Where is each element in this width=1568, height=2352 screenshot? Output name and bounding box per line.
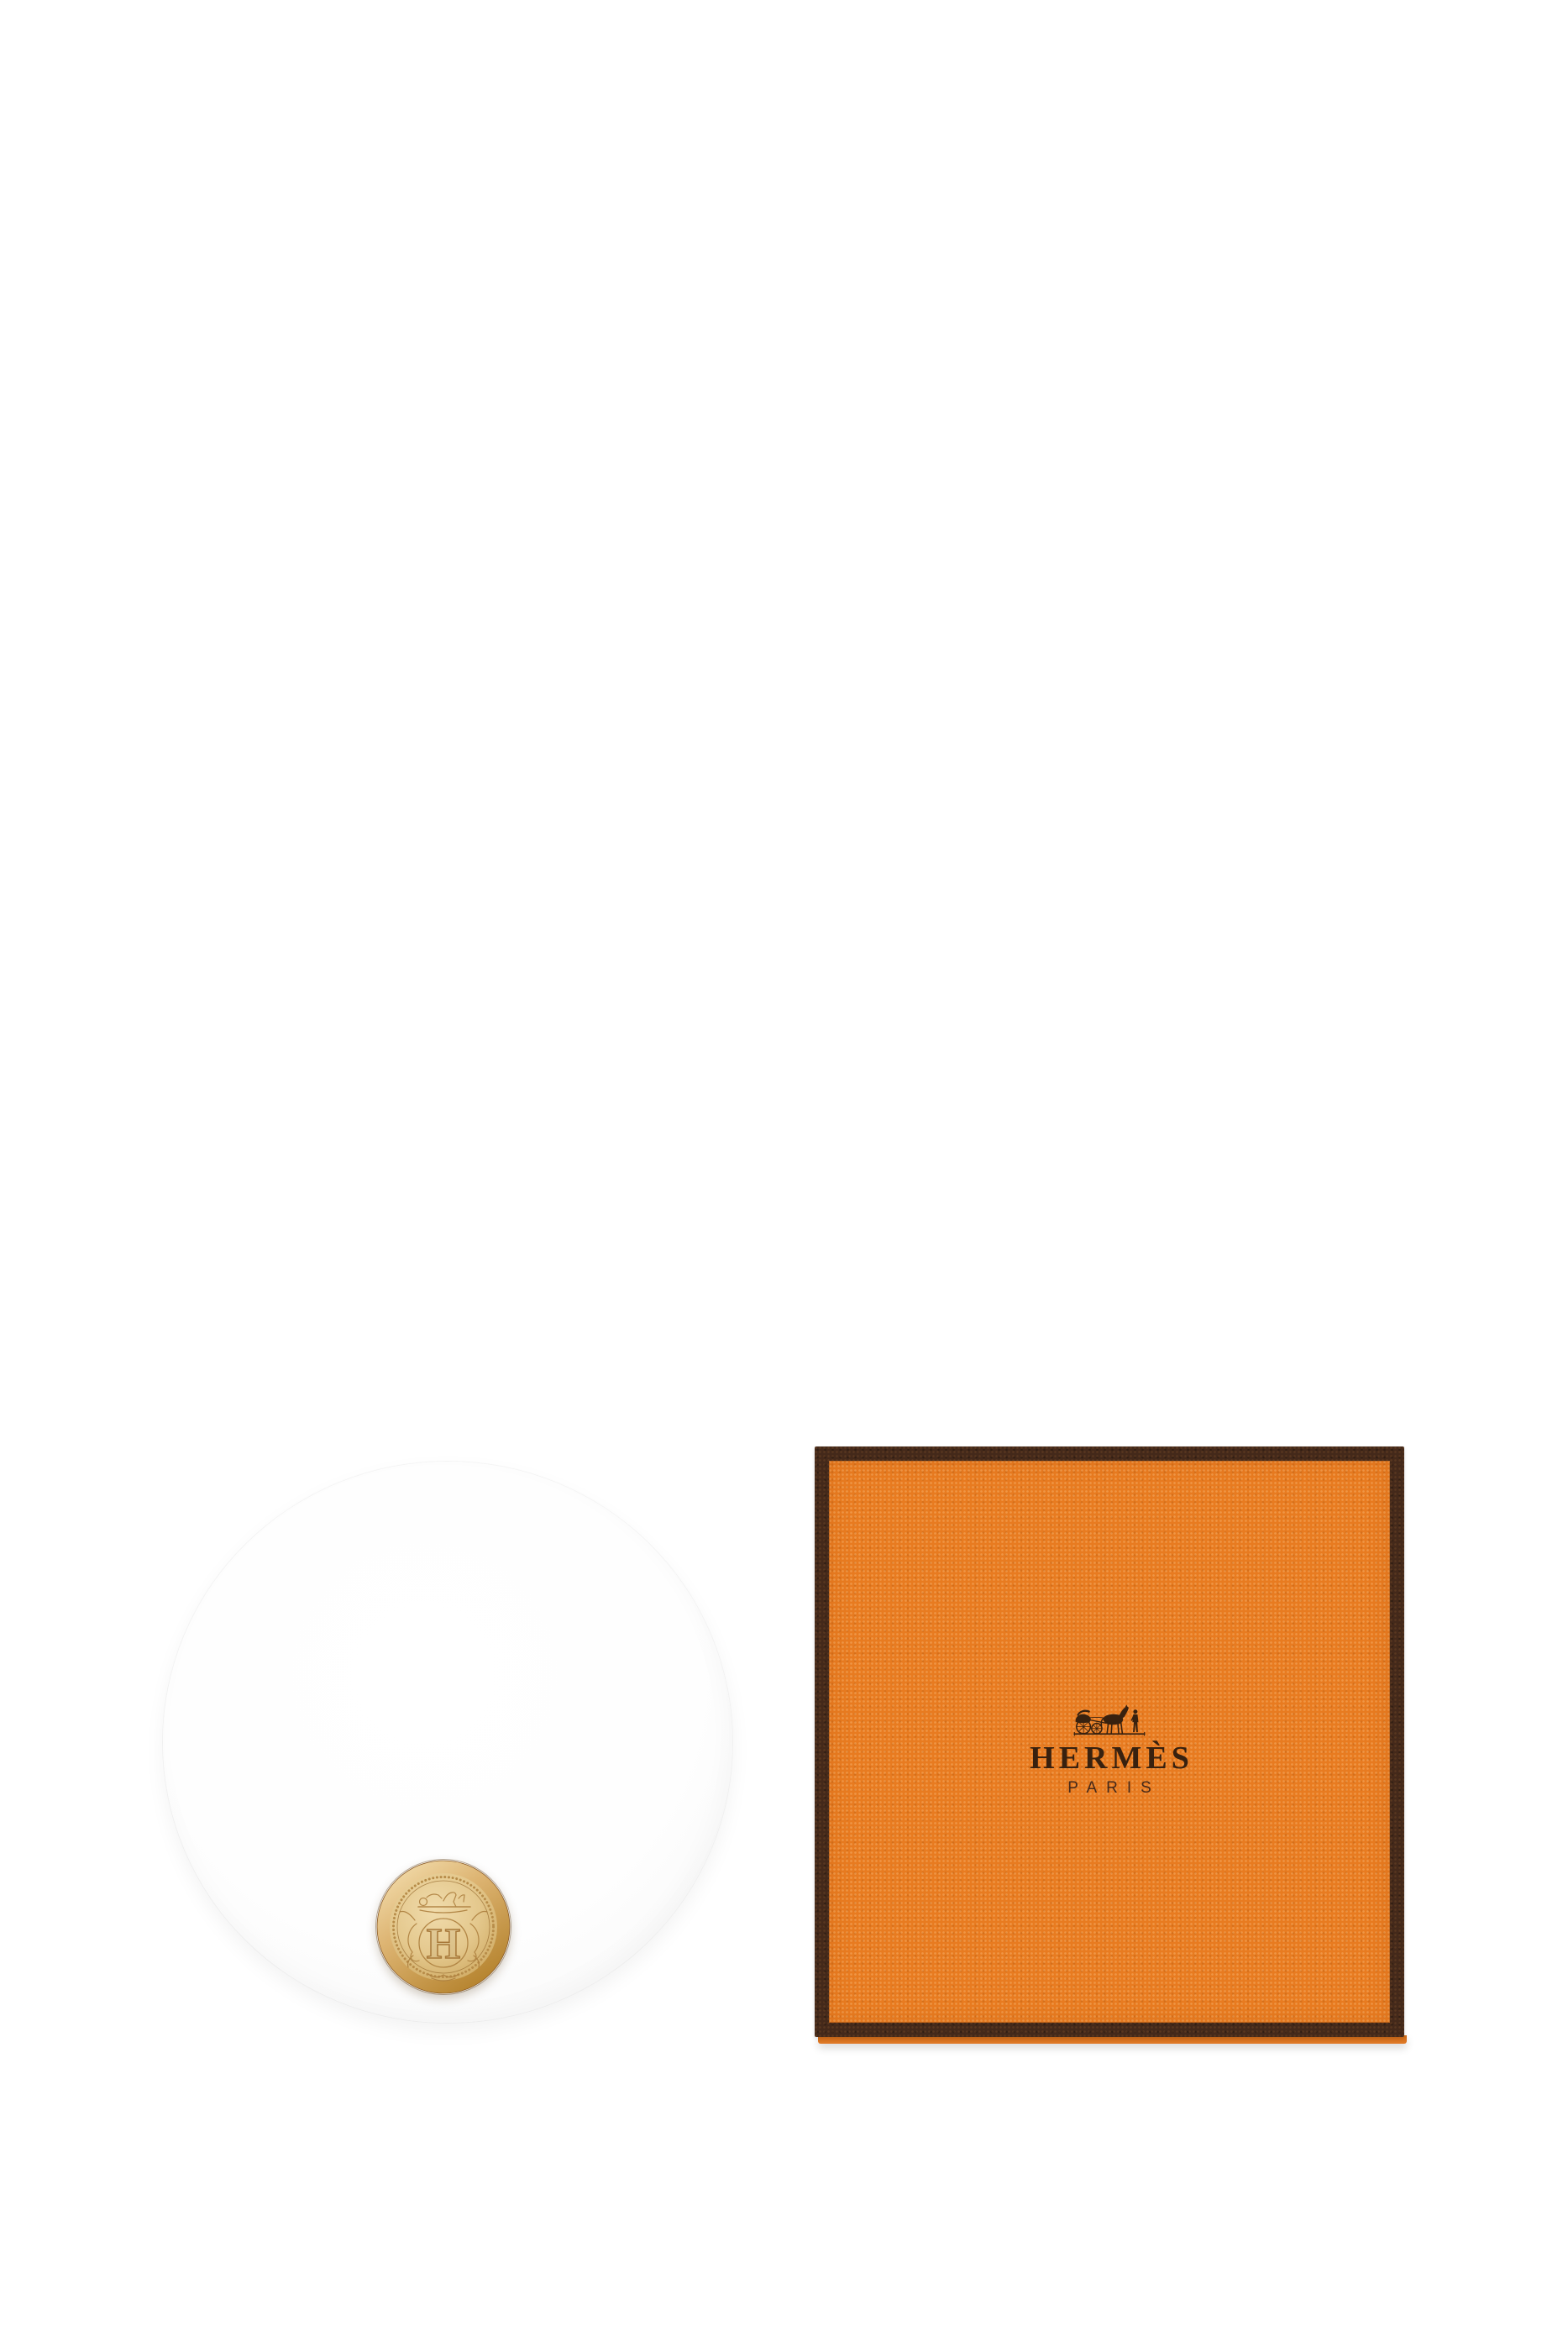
- hermes-crest-seal-icon: H: [376, 1860, 511, 1994]
- crest-medallion: H: [376, 1860, 511, 1994]
- city-name: PARIS: [838, 1780, 1390, 1796]
- gift-box: HERMÈS PARIS: [815, 1446, 1404, 2044]
- box-brown-border: HERMÈS PARIS: [815, 1446, 1404, 2037]
- medallion-letter: H: [427, 1920, 460, 1968]
- box-orange-face: HERMÈS PARIS: [829, 1461, 1390, 2023]
- product-photo: H: [0, 0, 1568, 2352]
- brand-name: HERMÈS: [833, 1742, 1390, 1774]
- hermes-carriage-logo-icon: [1065, 1700, 1154, 1739]
- hermes-logo: HERMÈS PARIS: [829, 1700, 1390, 1796]
